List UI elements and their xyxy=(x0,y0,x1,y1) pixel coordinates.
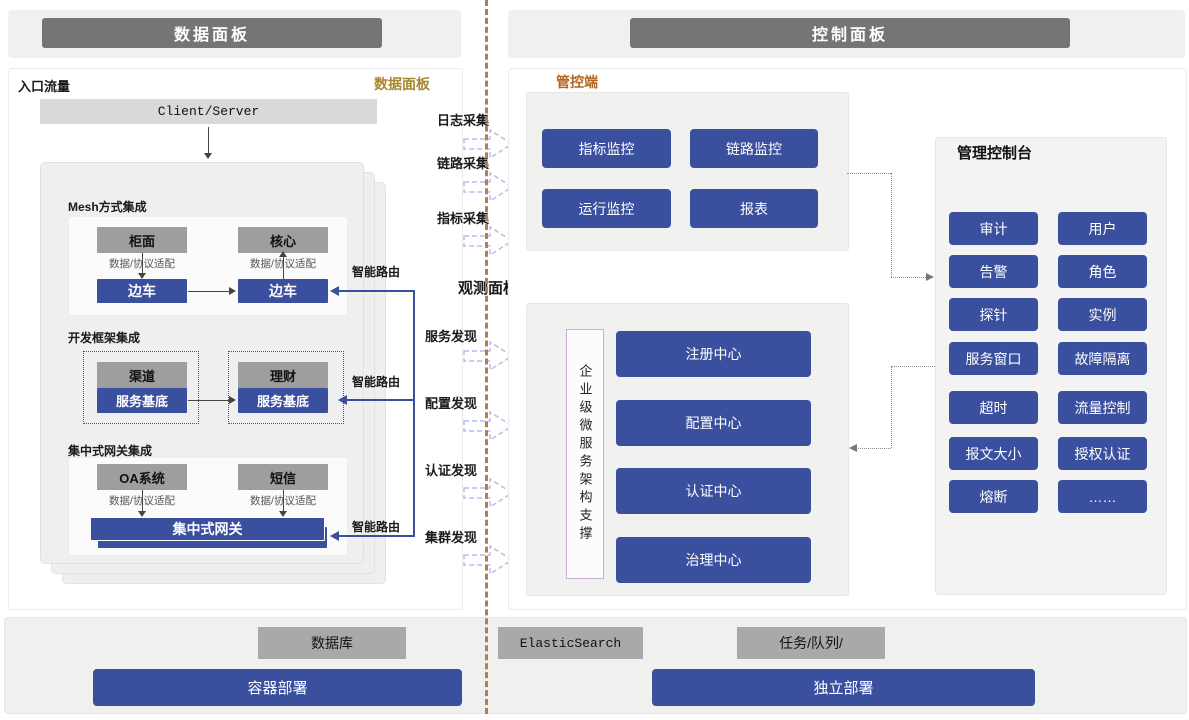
service-base-right-box: 服务基底 xyxy=(238,388,328,413)
auth-discover-arrow-icon xyxy=(461,475,515,511)
microservice-support-label: 企业级微服务架构支撑 xyxy=(566,329,604,579)
console-to-observe-line-h1 xyxy=(891,366,935,367)
control-panel-header: 控制面板 xyxy=(630,18,1070,48)
trace-collect-arrow-icon xyxy=(461,169,515,205)
smart-route-branch-2 xyxy=(345,399,415,401)
channel-box: 渠道 xyxy=(97,362,187,388)
smart-route-branch-3 xyxy=(337,535,415,537)
console-to-observe-arrowhead xyxy=(849,444,857,452)
service-discover-arrow-icon xyxy=(461,338,515,374)
console-button-instance: 实例 xyxy=(1058,298,1147,331)
sidecar-right-box: 边车 xyxy=(238,279,328,303)
config-discover-arrow-icon xyxy=(461,408,515,444)
counter-box: 柜面 xyxy=(97,227,187,253)
smart-route-arrowhead-3 xyxy=(330,531,339,541)
smart-route-label-1: 智能路由 xyxy=(352,263,400,280)
console-title: 管理控制台 xyxy=(957,142,1032,163)
mesh-section-label: Mesh方式集成 xyxy=(68,198,147,215)
client-server-arrowhead xyxy=(204,153,212,159)
oa-to-gateway-line xyxy=(142,490,143,513)
container-deploy-bar: 容器部署 xyxy=(93,669,462,706)
gateway-bar: 集中式网关 xyxy=(90,517,325,541)
sidecar-left-box: 边车 xyxy=(97,279,187,303)
task-queue-box: 任务/队列/ xyxy=(737,627,885,659)
console-button-role: 角色 xyxy=(1058,255,1147,288)
monitor-to-console-line-h2 xyxy=(891,277,928,278)
governance-center-bar: 治理中心 xyxy=(616,537,811,583)
config-center-bar: 配置中心 xyxy=(616,400,811,446)
monitor-to-console-line-v xyxy=(891,173,892,277)
console-button-fault-isolation: 故障隔离 xyxy=(1058,342,1147,375)
smart-route-arrowhead-2 xyxy=(338,395,347,405)
metric-collect-arrow-icon xyxy=(461,223,515,259)
sms-to-gateway-line xyxy=(283,490,284,513)
core-box: 核心 xyxy=(238,227,328,253)
console-button-audit: 审计 xyxy=(949,212,1038,245)
console-to-observe-line-v xyxy=(891,366,892,448)
console-to-observe-line-h2 xyxy=(856,448,891,449)
sidecar-to-core-arrowhead xyxy=(279,251,287,257)
oa-system-box: OA系统 xyxy=(97,464,187,490)
console-button-timeout: 超时 xyxy=(949,391,1038,424)
console-button-authorization: 授权认证 xyxy=(1058,437,1147,470)
devfw-section-label: 开发框架集成 xyxy=(68,329,140,346)
service-base-link-line xyxy=(188,400,230,401)
console-button-user: 用户 xyxy=(1058,212,1147,245)
smart-route-label-2: 智能路由 xyxy=(352,373,400,390)
monitor-to-console-line-h1 xyxy=(847,173,891,174)
mgmt-side-label: 管控端 xyxy=(556,72,598,92)
data-panel-header: 数据面板 xyxy=(42,18,382,48)
runtime-monitor-button: 运行监控 xyxy=(542,189,671,228)
monitor-to-console-arrowhead xyxy=(926,273,934,281)
sms-box: 短信 xyxy=(238,464,328,490)
sidecar-link-line xyxy=(188,291,230,292)
smart-route-arrowhead-1 xyxy=(330,286,339,296)
smart-route-bus-line xyxy=(413,290,415,537)
service-base-left-box: 服务基底 xyxy=(97,388,187,413)
service-base-link-arrowhead xyxy=(229,396,236,404)
client-server-arrow-line xyxy=(208,127,209,155)
standalone-deploy-bar: 独立部署 xyxy=(652,669,1035,706)
console-button-message-size: 报文大小 xyxy=(949,437,1038,470)
console-button-service-window: 服务窗口 xyxy=(949,342,1038,375)
console-button-circuit-break: 熔断 xyxy=(949,480,1038,513)
console-button-probe: 探针 xyxy=(949,298,1038,331)
entry-traffic-label: 入口流量 xyxy=(18,76,70,95)
panel-divider xyxy=(485,0,488,714)
trace-monitor-button: 链路监控 xyxy=(690,129,818,168)
metric-monitor-button: 指标监控 xyxy=(542,129,671,168)
database-box: 数据库 xyxy=(258,627,406,659)
sidecar-to-core-line xyxy=(283,256,284,279)
architecture-diagram: 数据面板 控制面板 入口流量 数据面板 Client/Server Mesh方式… xyxy=(0,0,1189,720)
console-button-more: …… xyxy=(1058,480,1147,513)
registry-center-bar: 注册中心 xyxy=(616,331,811,377)
cluster-discover-arrow-icon xyxy=(461,542,515,578)
console-button-flow-control: 流量控制 xyxy=(1058,391,1147,424)
data-plane-corner-title: 数据面板 xyxy=(374,74,430,94)
smart-route-branch-1 xyxy=(337,290,415,292)
sidecar-link-arrowhead xyxy=(229,287,236,295)
smart-route-label-3: 智能路由 xyxy=(352,518,400,535)
elasticsearch-box: ElasticSearch xyxy=(498,627,643,659)
report-button: 报表 xyxy=(690,189,818,228)
client-server-box: Client/Server xyxy=(40,99,377,124)
console-button-alert: 告警 xyxy=(949,255,1038,288)
wealth-box: 理财 xyxy=(238,362,328,388)
auth-center-bar: 认证中心 xyxy=(616,468,811,514)
